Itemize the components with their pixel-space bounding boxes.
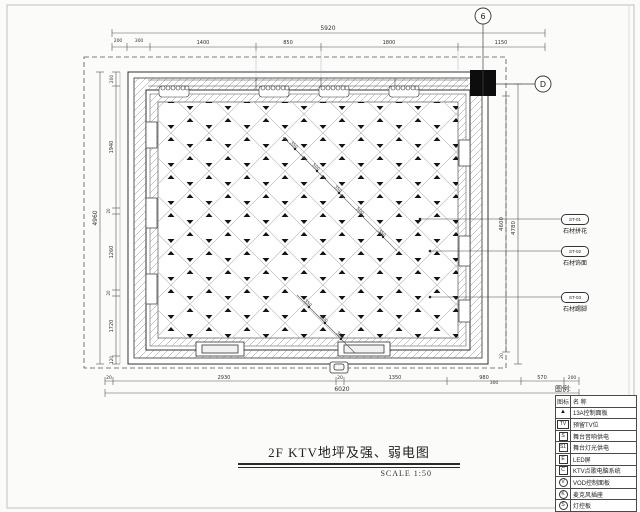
legend-col-icon: 图标 (556, 396, 571, 407)
dim-top-labels: 5920 200 300 1400 850 1800 1150 (114, 25, 508, 46)
svg-text:1940: 1940 (109, 141, 115, 154)
svg-text:1350: 1350 (389, 375, 402, 381)
callout-1-label: 石材拼花 (552, 226, 598, 235)
legend-row-name: LED屏 (571, 455, 636, 464)
axis-bubble-6-label: 6 (480, 12, 485, 21)
axis-bubble-d-label: D (540, 80, 546, 89)
floor-finish (150, 94, 466, 346)
led-screen-icon: E (559, 455, 568, 464)
svg-text:300: 300 (490, 380, 499, 386)
svg-text:570: 570 (537, 375, 547, 381)
svg-text:850: 850 (283, 40, 293, 46)
callout-2-label: 石材饰面 (552, 258, 598, 267)
legend-row: S1 舞台灯光供电 (556, 441, 636, 453)
sofa (159, 86, 189, 97)
svg-text:1720: 1720 (109, 320, 115, 333)
vod-panel-icon: V (559, 478, 568, 487)
drawing-scale: SCALE 1:50 (238, 469, 460, 478)
callout-3: ST-03 石材踢脚 (552, 292, 598, 313)
callout-1-code: ST-01 (561, 214, 589, 225)
dim-left-labels: 4960 200 1940 20 1260 20 1720 120 (92, 75, 115, 365)
svg-text:1150: 1150 (495, 40, 508, 46)
sofa (319, 86, 349, 97)
tv-icon: TV (557, 420, 569, 429)
svg-text:200: 200 (109, 75, 115, 84)
ktv-computer-icon: C (559, 466, 568, 475)
svg-text:6020: 6020 (334, 386, 349, 393)
callout-1: ST-01 石材拼花 (552, 214, 598, 235)
svg-text:120: 120 (109, 356, 115, 365)
dim-right-labels: 4600 4780 20 300 (490, 217, 517, 386)
svg-text:980: 980 (479, 375, 489, 381)
legend-row-name: 预留TV位 (571, 420, 636, 429)
legend-row: ▲ 13A控制面板 (556, 407, 636, 419)
svg-text:5920: 5920 (320, 25, 335, 32)
svg-text:4960: 4960 (92, 210, 99, 225)
callout-3-code: ST-03 (561, 292, 589, 303)
legend-title: 图例: (555, 384, 637, 394)
legend-row-name: 舞台音响供电 (571, 432, 636, 441)
svg-text:200: 200 (114, 38, 123, 44)
svg-text:1800: 1800 (383, 40, 396, 46)
sofa (259, 86, 289, 97)
legend-row: S 灯控板 (556, 499, 636, 511)
svg-text:200: 200 (568, 375, 577, 381)
svg-text:1400: 1400 (197, 40, 210, 46)
light-power-icon: S1 (559, 443, 568, 452)
svg-text:4600: 4600 (499, 217, 505, 231)
svg-text:2930: 2930 (218, 375, 231, 381)
svg-text:20: 20 (106, 208, 111, 214)
legend-row-name: 舞台灯光供电 (571, 443, 636, 452)
legend-row-name: 灯控板 (571, 501, 636, 510)
legend-header-row: 图标 名 称 (556, 396, 636, 407)
legend-col-name: 名 称 (571, 397, 636, 406)
callout-2-code: ST-02 (561, 246, 589, 257)
svg-text:20: 20 (106, 290, 111, 296)
legend-row-name: 麦克风插座 (571, 490, 636, 499)
triangle-icon: ▲ (560, 409, 566, 416)
legend-row: C KTV点歌电脑系统 (556, 465, 636, 477)
title-rule-thin (238, 467, 460, 468)
svg-text:4780: 4780 (511, 221, 517, 235)
svg-text:1260: 1260 (109, 246, 115, 259)
legend-row: V VOD控制面板 (556, 476, 636, 488)
legend-row: S 舞台音响供电 (556, 430, 636, 442)
dim-left (96, 72, 120, 364)
svg-text:20: 20 (337, 375, 343, 381)
drawing-title: 2F KTV地坪及强、弱电图 (238, 442, 460, 461)
legend-row: TV 预留TV位 (556, 418, 636, 430)
legend-row-name: 13A控制面板 (571, 408, 636, 417)
sofa (389, 86, 419, 97)
svg-text:20: 20 (499, 353, 505, 359)
legend: 图例: 图标 名 称 ▲ 13A控制面板 TV 预留TV位 S 舞台音响供电 S… (555, 384, 637, 512)
floor-plan-svg: 6 D 5920 200 300 1400 850 1800 1150 20 (0, 0, 640, 512)
drawing-title-block: 2F KTV地坪及强、弱电图 SCALE 1:50 (238, 442, 460, 478)
legend-row: K 麦克风插座 (556, 488, 636, 500)
legend-row: E LED屏 (556, 453, 636, 465)
legend-row-name: VOD控制面板 (571, 478, 636, 487)
svg-text:300: 300 (135, 38, 144, 44)
svg-text:20: 20 (106, 375, 112, 381)
light-control-icon: S (559, 501, 568, 510)
legend-table: 图标 名 称 ▲ 13A控制面板 TV 预留TV位 S 舞台音响供电 S1 舞台… (555, 395, 637, 512)
callout-3-label: 石材踢脚 (552, 304, 598, 313)
callout-2: ST-02 石材饰面 (552, 246, 598, 267)
dim-bottom-labels: 20 2930 20 1350 980 570 200 6020 (106, 375, 576, 393)
legend-row-name: KTV点歌电脑系统 (571, 466, 636, 475)
title-rule-thick (238, 463, 460, 465)
microphone-socket-icon: K (559, 490, 568, 499)
sound-power-icon: S (559, 432, 568, 441)
